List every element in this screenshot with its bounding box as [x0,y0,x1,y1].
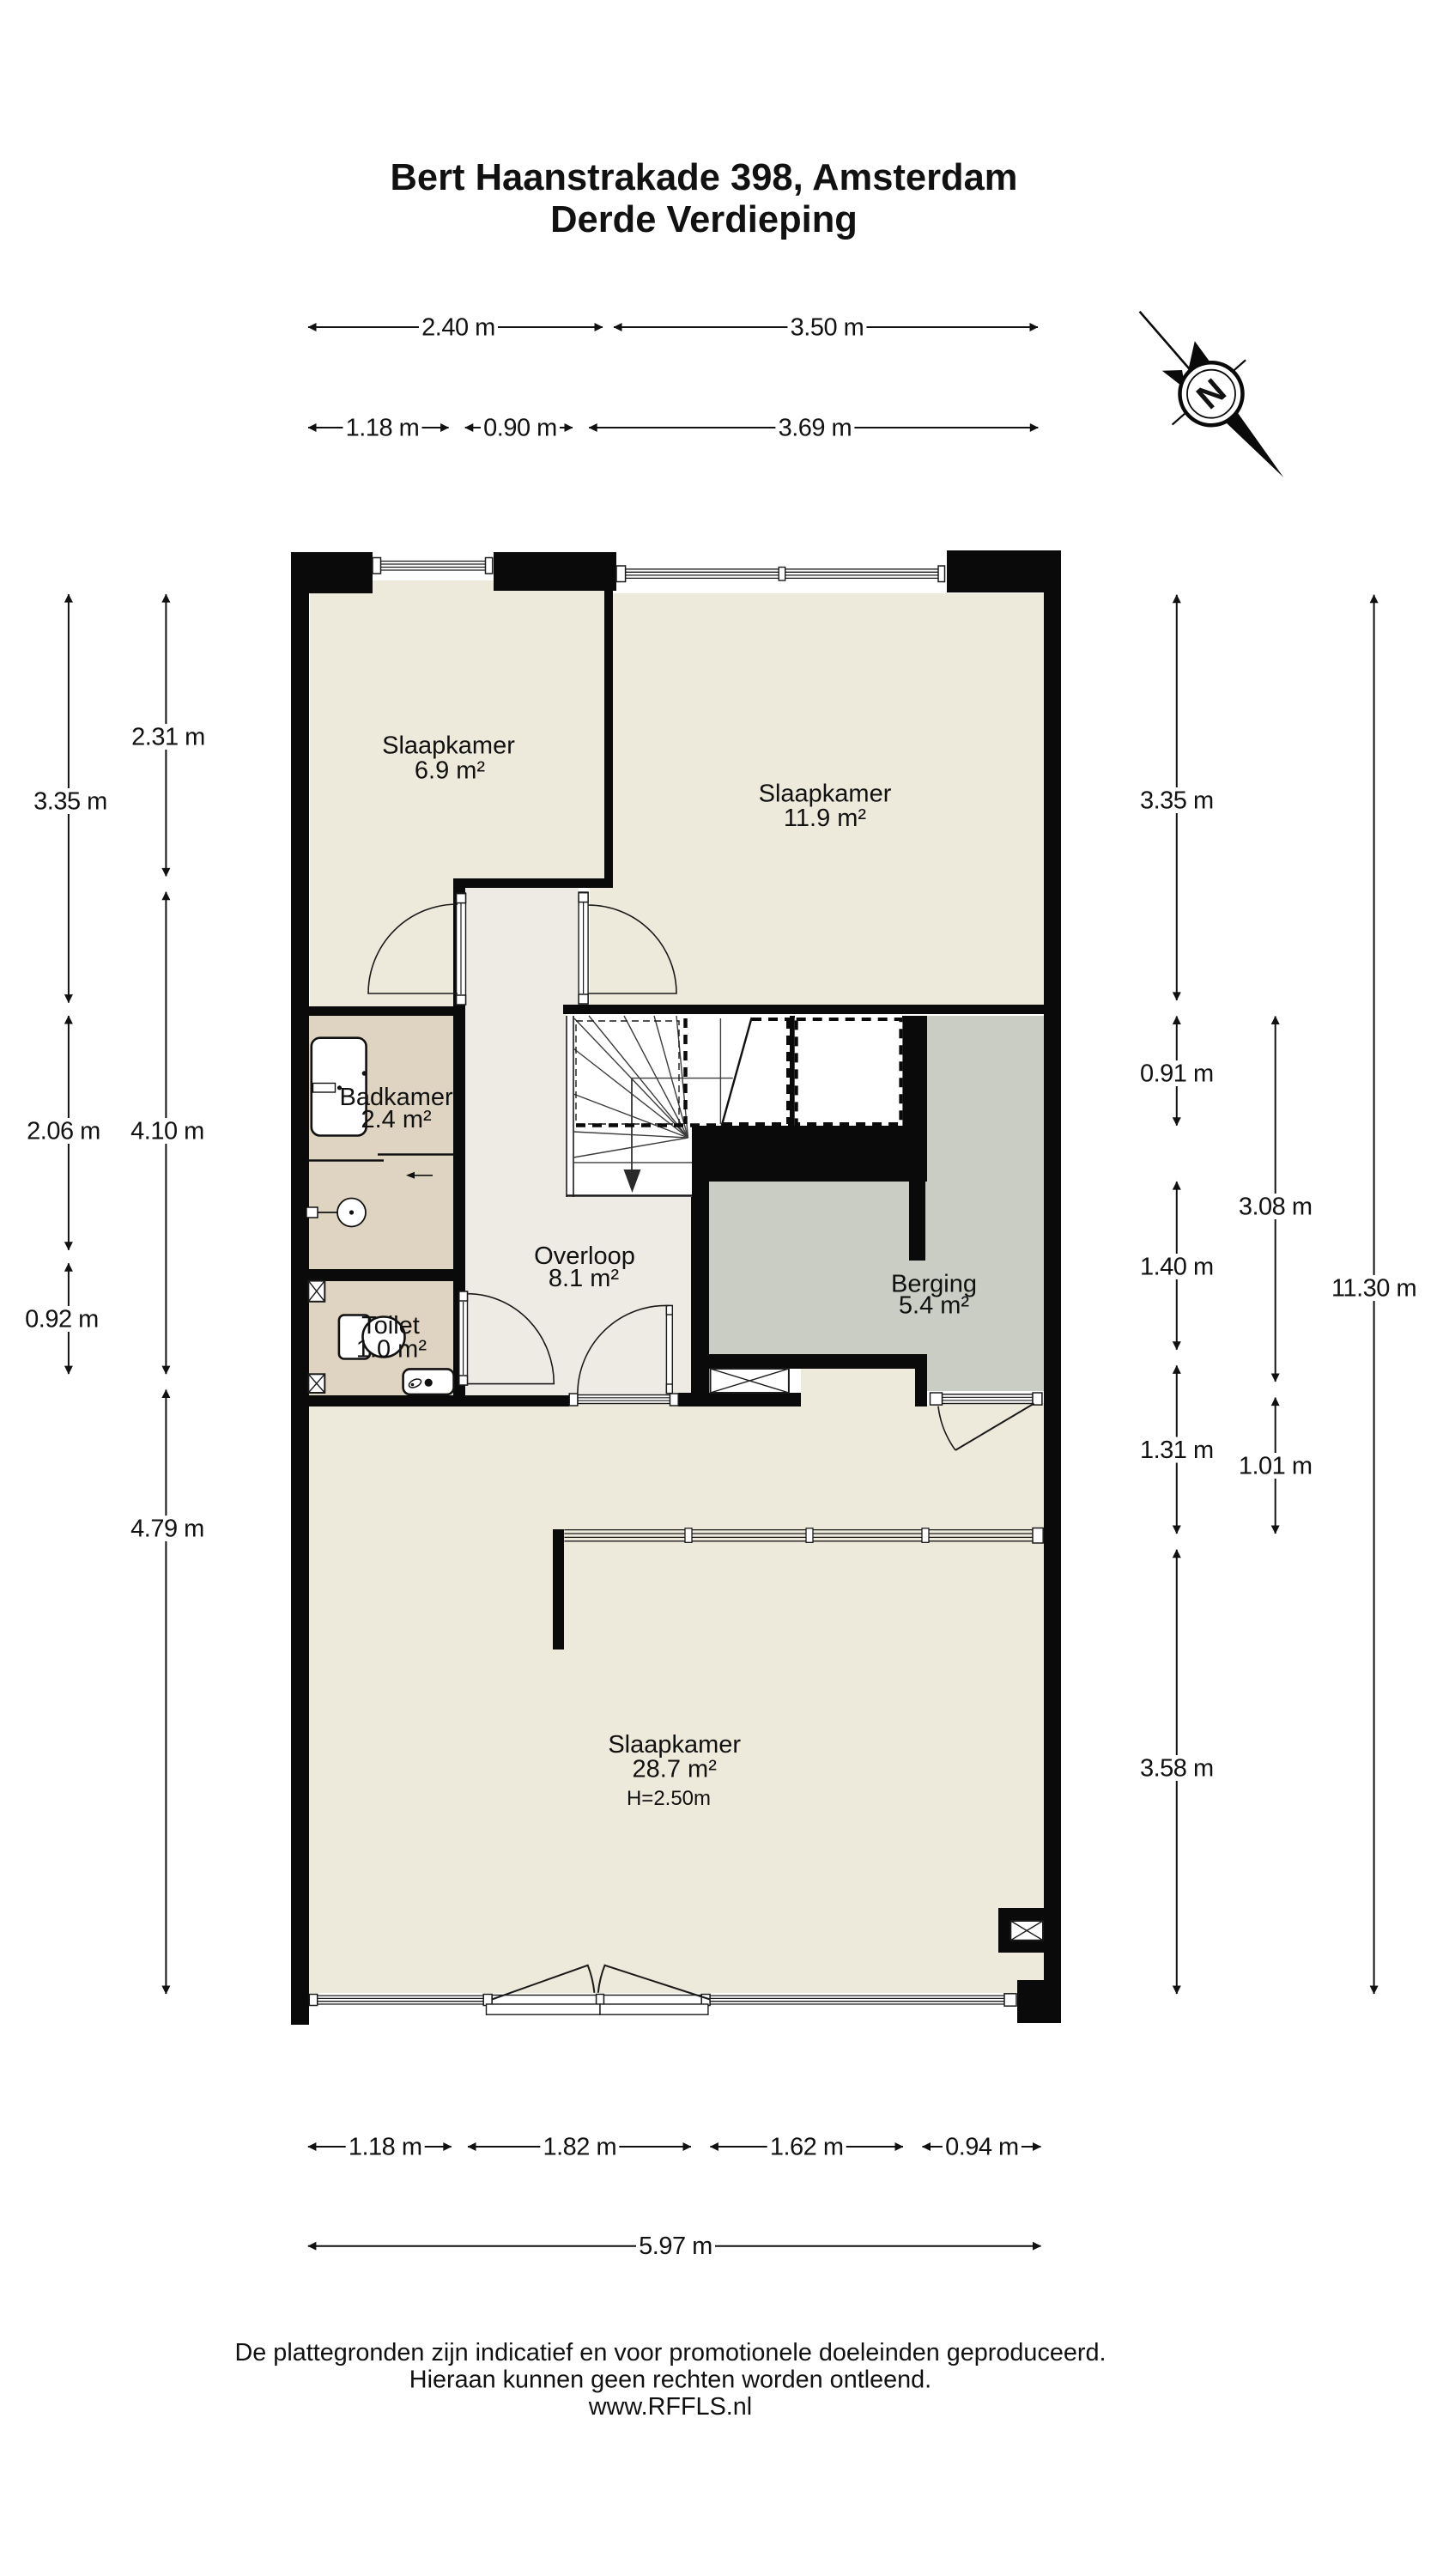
svg-text:1.01 m: 1.01 m [1239,1453,1313,1480]
svg-text:3.50 m: 3.50 m [791,314,864,342]
svg-text:2.06 m: 2.06 m [27,1118,100,1145]
svg-text:www.RFFLS.nl: www.RFFLS.nl [588,2393,752,2421]
svg-text:11.9 m²: 11.9 m² [784,805,867,832]
svg-text:11.30 m: 11.30 m [1331,1275,1416,1303]
svg-text:2.31 m: 2.31 m [131,724,205,751]
svg-text:0.90 m: 0.90 m [483,415,557,442]
svg-text:Slaapkamer: Slaapkamer [759,781,892,808]
svg-text:3.35 m: 3.35 m [1140,787,1214,815]
svg-text:4.10 m: 4.10 m [130,1118,204,1145]
svg-text:3.69 m: 3.69 m [779,415,852,442]
svg-text:1.31 m: 1.31 m [1140,1437,1214,1464]
svg-text:5.97 m: 5.97 m [639,2233,712,2260]
svg-text:3.08 m: 3.08 m [1239,1194,1313,1221]
svg-text:1.40 m: 1.40 m [1140,1254,1214,1281]
svg-text:0.92 m: 0.92 m [25,1306,99,1334]
svg-text:8.1 m²: 8.1 m² [549,1265,620,1292]
svg-text:0.91 m: 0.91 m [1140,1060,1214,1088]
svg-text:1.18 m: 1.18 m [346,415,420,442]
svg-text:Derde Verdieping: Derde Verdieping [550,199,858,240]
svg-text:Slaapkamer: Slaapkamer [382,732,515,760]
svg-text:5.4 m²: 5.4 m² [899,1291,970,1319]
svg-text:Bert Haanstrakade 398, Amsterd: Bert Haanstrakade 398, Amsterdam [391,157,1018,198]
svg-text:0.94 m: 0.94 m [945,2134,1019,2161]
svg-text:6.9 m²: 6.9 m² [415,757,486,785]
svg-text:Hieraan kunnen geen rechten wo: Hieraan kunnen geen rechten worden ontle… [409,2366,931,2394]
svg-text:28.7 m²: 28.7 m² [633,1756,718,1783]
svg-text:3.58 m: 3.58 m [1140,1755,1214,1783]
svg-text:2.4 m²: 2.4 m² [361,1106,433,1133]
svg-text:1.82 m: 1.82 m [543,2134,616,2161]
svg-text:Slaapkamer: Slaapkamer [608,1731,741,1759]
svg-text:1.0 m²: 1.0 m² [356,1335,427,1363]
svg-text:De plattegronden zijn indicati: De plattegronden zijn indicatief en voor… [235,2339,1106,2366]
svg-text:1.18 m: 1.18 m [349,2134,422,2161]
svg-text:1.62 m: 1.62 m [770,2134,844,2161]
svg-text:4.79 m: 4.79 m [130,1516,204,1543]
svg-text:3.35 m: 3.35 m [33,788,107,816]
svg-text:2.40 m: 2.40 m [421,314,495,342]
svg-text:H=2.50m: H=2.50m [627,1787,711,1810]
